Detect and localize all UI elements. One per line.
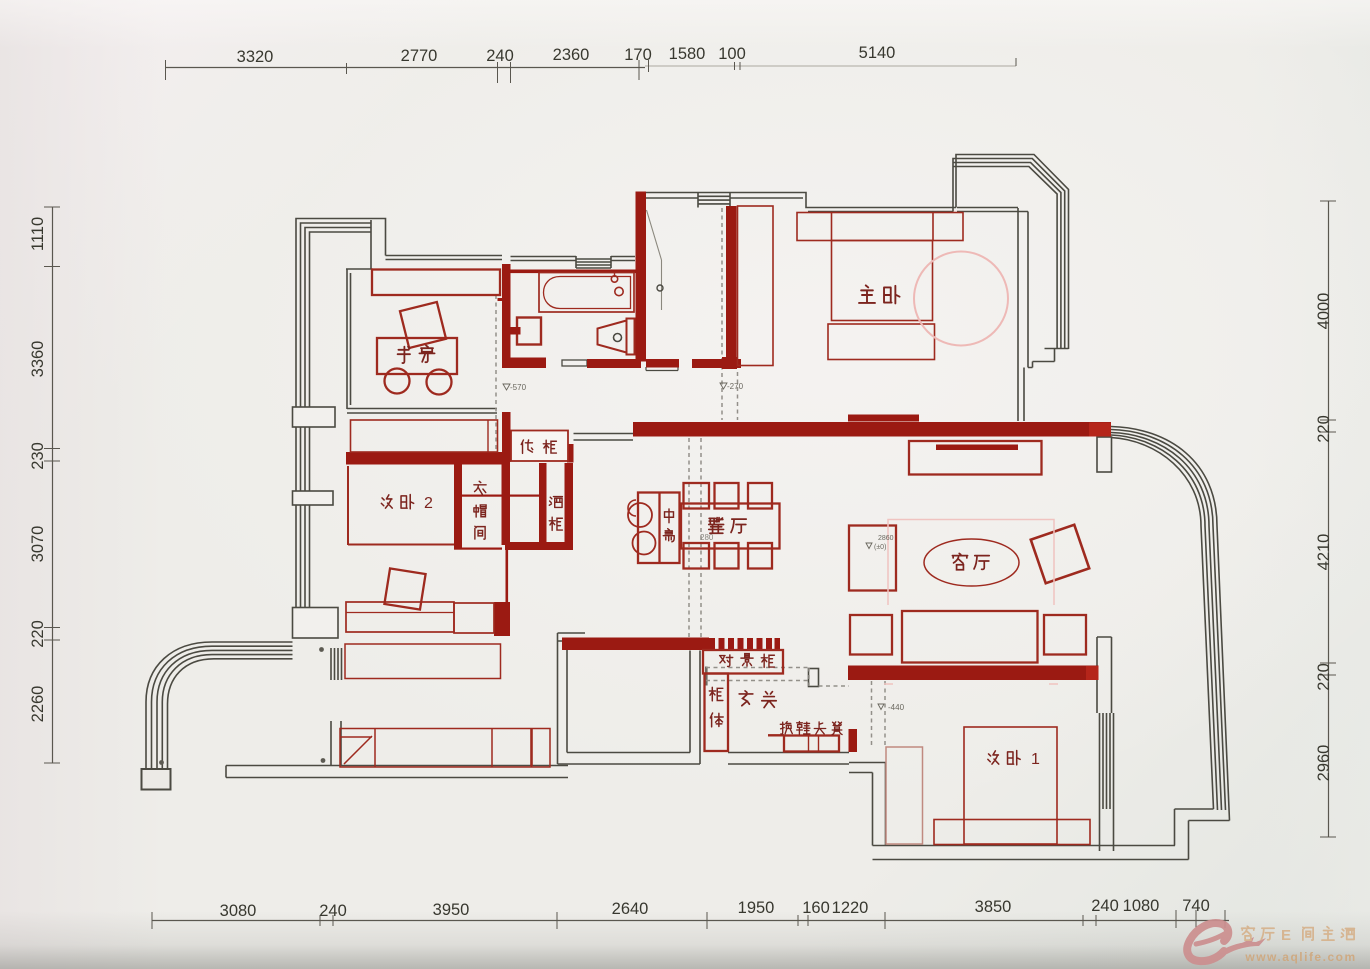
svg-text:3080: 3080 [220,902,257,920]
svg-text:240: 240 [486,47,514,65]
svg-text:3070: 3070 [29,526,47,563]
svg-text:160: 160 [802,899,830,917]
svg-text:2: 2 [424,495,433,512]
svg-text:2640: 2640 [612,900,649,918]
svg-text:3950: 3950 [433,901,470,919]
svg-text:220: 220 [1315,415,1333,443]
svg-text:1080: 1080 [1123,897,1160,915]
svg-text:-570: -570 [510,383,527,392]
svg-text:3360: 3360 [29,341,47,378]
svg-text:280: 280 [700,533,714,542]
svg-text:2860: 2860 [878,535,894,542]
svg-text:1: 1 [1031,751,1040,768]
svg-text:2360: 2360 [553,46,590,64]
svg-text:240: 240 [1091,897,1119,915]
svg-text:220: 220 [1315,663,1333,691]
svg-text:240: 240 [319,902,347,920]
svg-text:2960: 2960 [1315,745,1333,782]
svg-text:740: 740 [1182,897,1210,915]
svg-text:-270: -270 [727,382,744,391]
svg-text:(±0): (±0) [874,544,886,551]
svg-text:-440: -440 [888,703,905,712]
svg-text:170: 170 [624,46,652,64]
svg-text:1950: 1950 [738,899,775,917]
svg-text:1580: 1580 [669,45,706,63]
svg-text:5140: 5140 [859,44,896,62]
svg-text:E: E [1281,927,1291,944]
svg-text:3850: 3850 [975,898,1012,916]
svg-text:4210: 4210 [1315,534,1333,571]
svg-text:4000: 4000 [1315,293,1333,330]
svg-text:2260: 2260 [29,686,47,723]
svg-text:230: 230 [29,442,47,470]
svg-text:2770: 2770 [401,47,438,65]
svg-text:www.aqlife.com: www.aqlife.com [1244,950,1356,964]
svg-text:1220: 1220 [832,899,869,917]
svg-text:3320: 3320 [237,48,274,66]
svg-text:1110: 1110 [29,217,47,251]
svg-text:100: 100 [718,45,746,63]
svg-text:220: 220 [29,620,47,648]
